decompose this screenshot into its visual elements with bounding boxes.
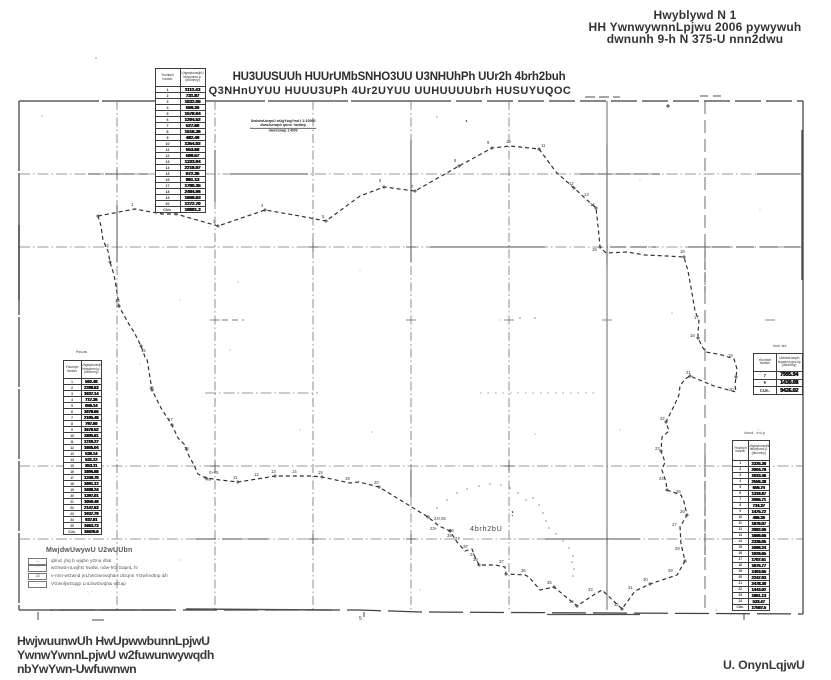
- svg-text:38: 38: [473, 557, 478, 562]
- svg-text:29: 29: [668, 568, 673, 573]
- svg-text:20: 20: [729, 387, 734, 392]
- svg-text:12: 12: [569, 181, 574, 186]
- svg-text:16: 16: [149, 385, 154, 390]
- svg-text:27: 27: [455, 536, 460, 541]
- svg-text:19: 19: [345, 476, 350, 481]
- svg-text:13: 13: [584, 192, 589, 197]
- svg-text:14: 14: [590, 202, 595, 207]
- svg-text:36: 36: [521, 568, 526, 573]
- svg-text:32: 32: [614, 602, 619, 607]
- svg-text:4: 4: [261, 203, 264, 208]
- svg-text:25: 25: [676, 489, 681, 494]
- svg-text:15: 15: [141, 348, 146, 353]
- svg-text:35: 35: [547, 580, 552, 585]
- svg-text:6: 6: [379, 178, 382, 183]
- svg-text:14: 14: [115, 298, 120, 303]
- svg-text:22: 22: [660, 416, 665, 421]
- svg-text:26: 26: [680, 509, 685, 514]
- svg-text:0+#5: 0+#5: [209, 470, 219, 475]
- svg-text:24: 24: [659, 476, 664, 481]
- svg-text:4brh2bU: 4brh2bU: [470, 524, 502, 533]
- svg-text:7: 7: [411, 184, 414, 189]
- svg-text:39: 39: [447, 533, 452, 538]
- svg-text:16: 16: [680, 249, 685, 254]
- svg-text:1: 1: [131, 202, 134, 207]
- svg-text:8: 8: [454, 158, 457, 163]
- svg-text:37: 37: [499, 559, 504, 564]
- svg-text:30: 30: [643, 577, 648, 582]
- svg-text:#9: #9: [206, 477, 211, 482]
- svg-text:3: 3: [213, 219, 216, 224]
- svg-text:9: 9: [487, 140, 490, 145]
- svg-text:18: 18: [184, 446, 189, 451]
- svg-text:19: 19: [728, 353, 733, 358]
- svg-text:21: 21: [686, 370, 691, 375]
- svg-text:2#: 2#: [470, 552, 475, 557]
- svg-text:26: 26: [449, 528, 454, 533]
- svg-text:15: 15: [592, 247, 597, 252]
- svg-text:23+: 23+: [430, 526, 438, 531]
- svg-text:13: 13: [271, 469, 276, 474]
- svg-text:12: 12: [254, 472, 259, 477]
- svg-text:11: 11: [541, 143, 546, 148]
- svg-text:34: 34: [569, 599, 574, 604]
- svg-text:17: 17: [694, 315, 699, 320]
- svg-text:11: 11: [233, 475, 238, 480]
- svg-text:2#: 2#: [463, 544, 468, 549]
- svg-text:28: 28: [675, 546, 680, 551]
- svg-text:17: 17: [168, 417, 173, 422]
- svg-text:13: 13: [104, 243, 109, 248]
- svg-text:5: 5: [322, 214, 325, 219]
- svg-text:5: 5: [359, 616, 362, 622]
- svg-text:10: 10: [506, 139, 511, 144]
- svg-text:20: 20: [374, 480, 379, 485]
- svg-text:23: 23: [655, 446, 660, 451]
- svg-text:24+25: 24+25: [434, 516, 446, 521]
- svg-text:27: 27: [672, 522, 677, 527]
- svg-text:33: 33: [588, 587, 593, 592]
- svg-text:18: 18: [690, 333, 695, 338]
- svg-text:15: 15: [318, 470, 323, 475]
- svg-text:31: 31: [628, 585, 633, 590]
- svg-text:14: 14: [292, 469, 297, 474]
